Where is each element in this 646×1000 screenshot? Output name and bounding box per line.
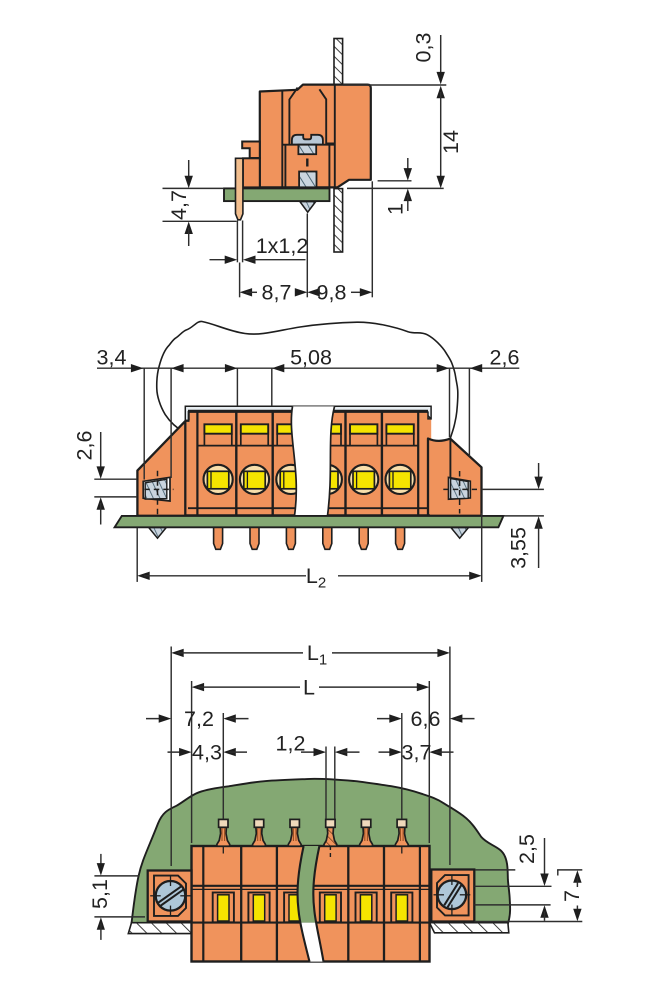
svg-text:4,3: 4,3 (192, 741, 222, 765)
svg-text:L2: L2 (306, 564, 326, 592)
svg-text:9,8: 9,8 (317, 281, 347, 305)
svg-text:3,7: 3,7 (402, 741, 432, 765)
svg-text:5,1: 5,1 (88, 879, 112, 909)
svg-text:1: 1 (384, 203, 408, 215)
svg-text:2,6: 2,6 (73, 431, 97, 461)
svg-text:5,08: 5,08 (290, 346, 332, 370)
svg-text:4,7: 4,7 (167, 190, 191, 220)
svg-text:L: L (303, 676, 315, 700)
svg-text:1x1,2: 1x1,2 (256, 234, 309, 258)
svg-text:3,4: 3,4 (97, 346, 127, 370)
svg-text:L1: L1 (307, 641, 327, 669)
svg-text:2,6: 2,6 (490, 346, 520, 370)
svg-text:2,5: 2,5 (515, 834, 539, 864)
svg-text:14: 14 (439, 130, 463, 154)
svg-text:6,6: 6,6 (411, 707, 441, 731)
svg-text:0,3: 0,3 (412, 33, 436, 63)
svg-text:8,7: 8,7 (262, 281, 292, 305)
svg-text:1,2: 1,2 (276, 732, 306, 756)
svg-text:7,2: 7,2 (184, 707, 214, 731)
svg-text:7: 7 (560, 890, 584, 902)
svg-text:3,55: 3,55 (507, 527, 531, 569)
